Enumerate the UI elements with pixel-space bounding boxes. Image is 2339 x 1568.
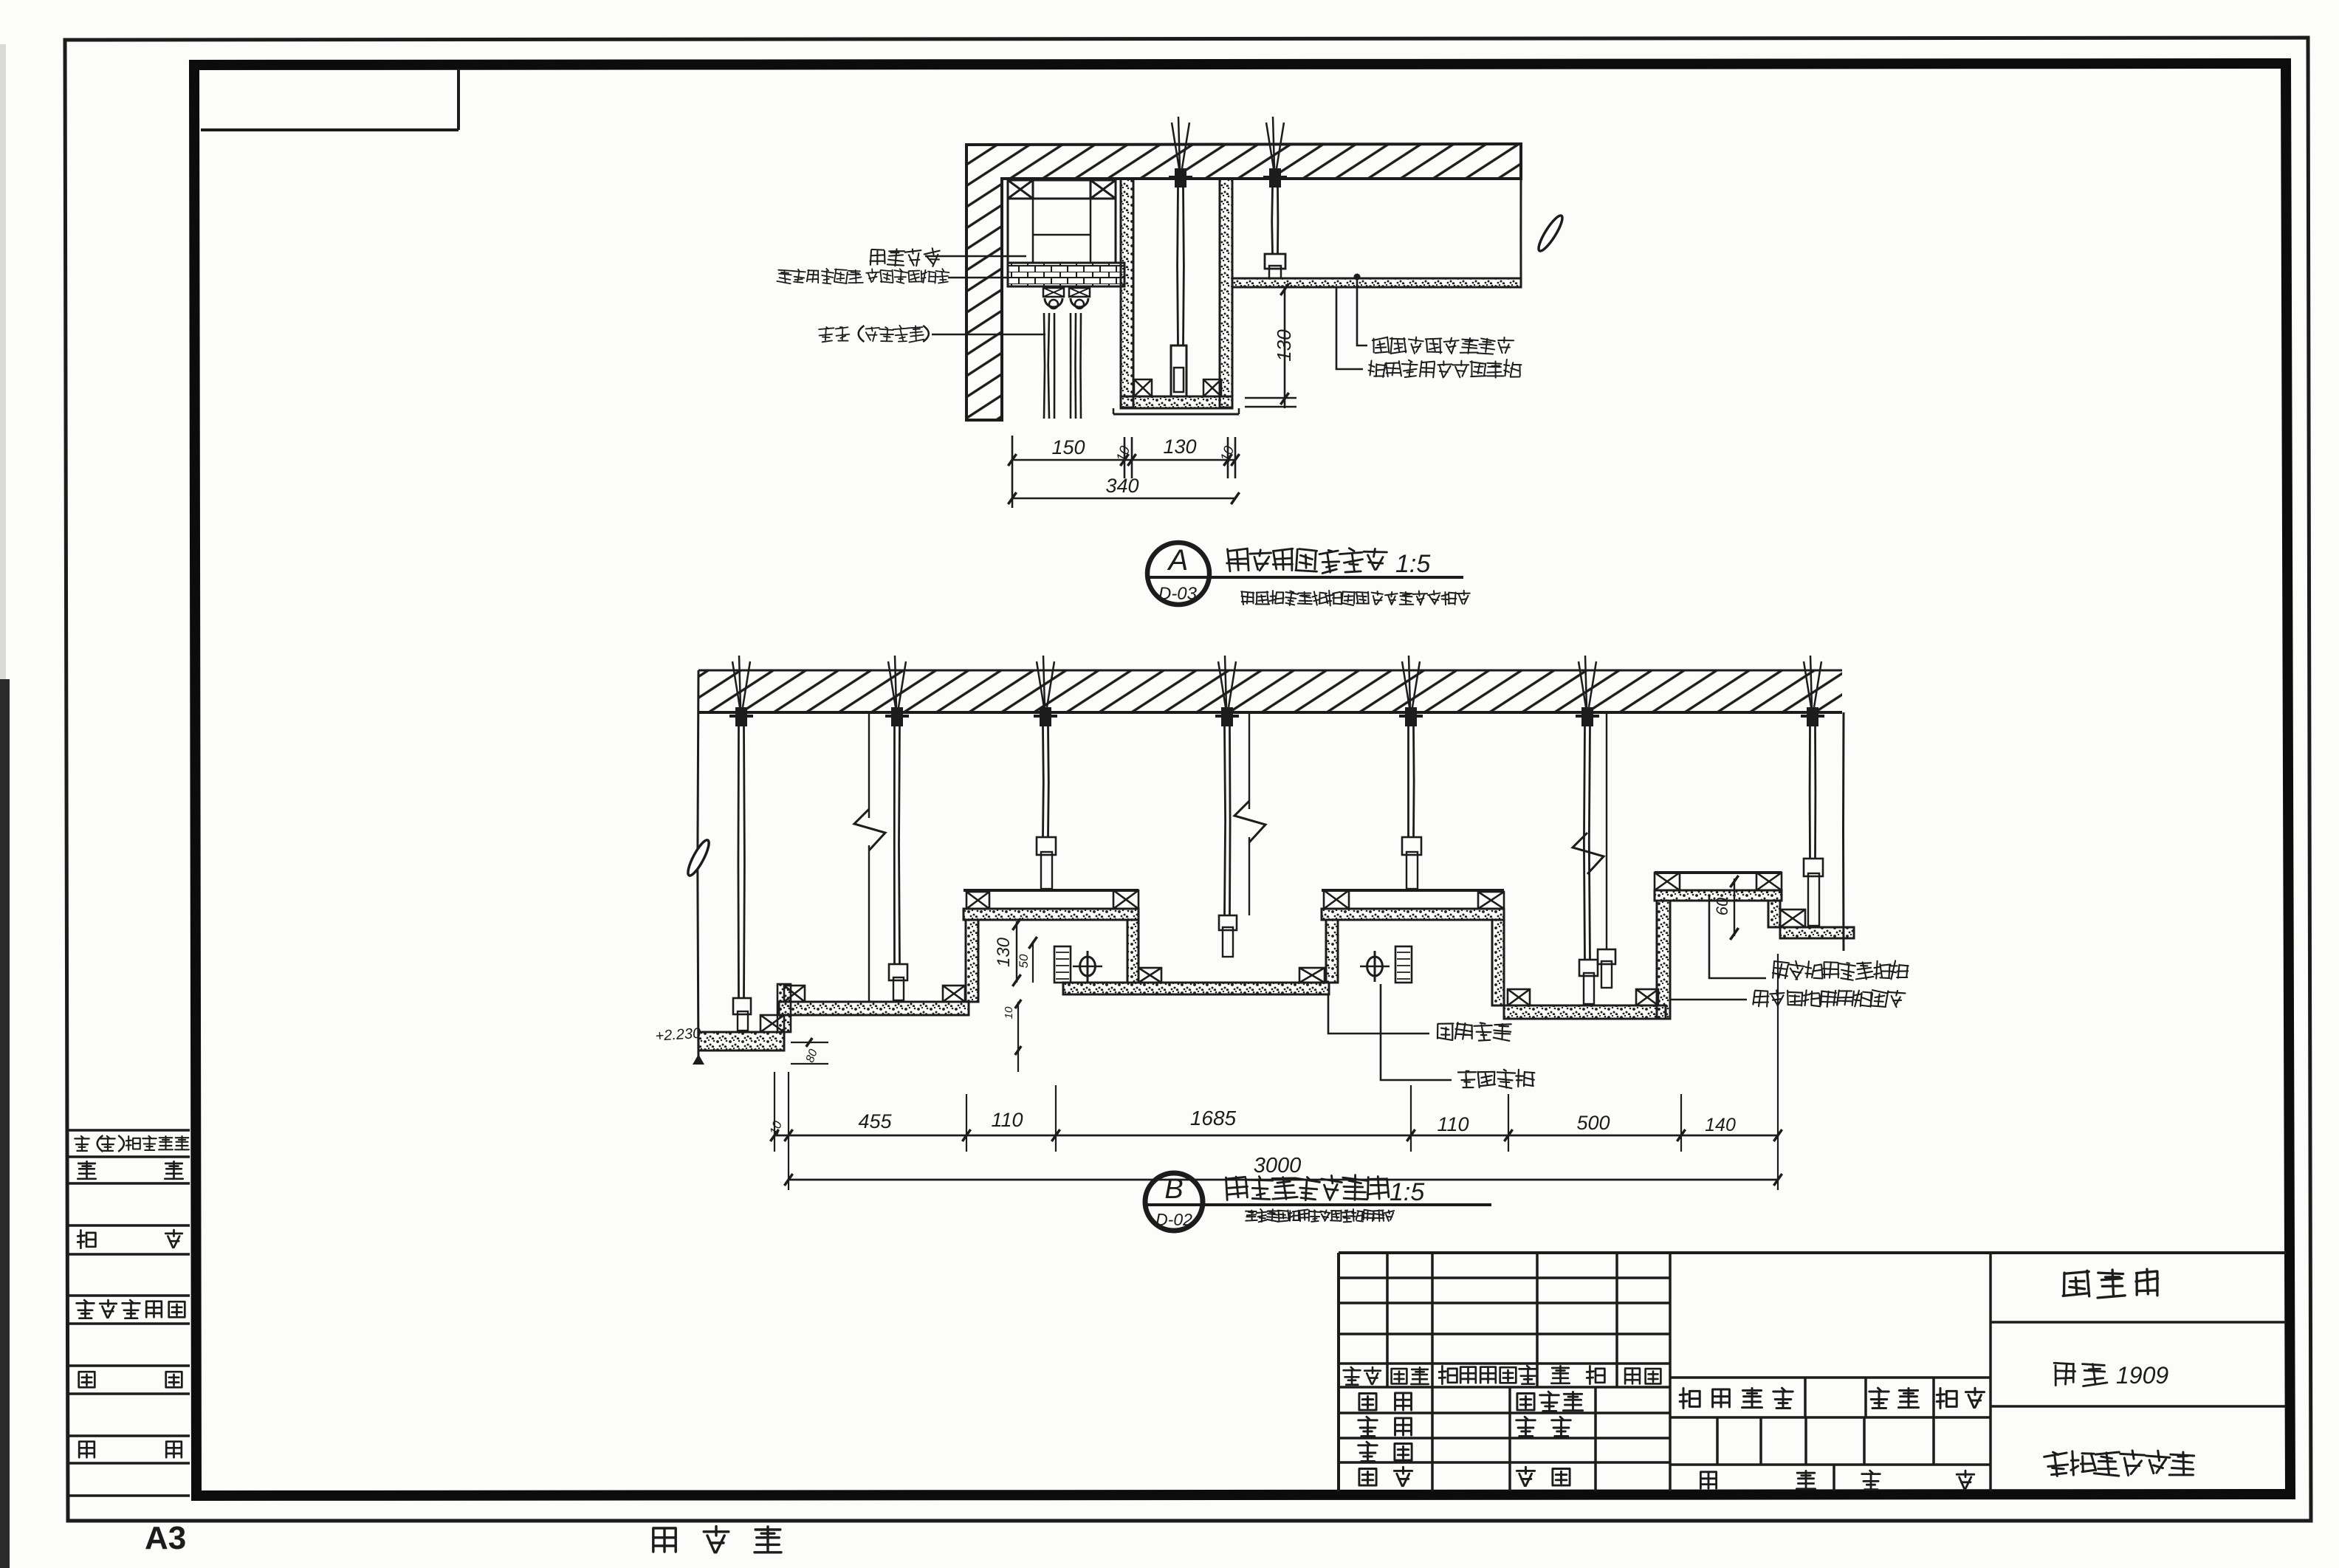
svg-text:D-03: D-03 — [1158, 584, 1198, 604]
svg-text:455: 455 — [858, 1110, 892, 1132]
svg-text:50: 50 — [1017, 954, 1031, 968]
svg-text:130: 130 — [1163, 436, 1196, 458]
svg-text:340: 340 — [1105, 475, 1138, 497]
svg-text:D-02: D-02 — [1155, 1210, 1192, 1229]
svg-text:130: 130 — [1273, 329, 1295, 362]
svg-text:10: 10 — [1003, 1006, 1015, 1019]
svg-text:1:5: 1:5 — [1395, 550, 1430, 578]
svg-text:60: 60 — [1713, 897, 1731, 915]
svg-text:110: 110 — [991, 1109, 1023, 1131]
svg-text:130: 130 — [994, 937, 1014, 967]
svg-text:3000: 3000 — [1254, 1154, 1302, 1177]
svg-text:140: 140 — [1705, 1115, 1736, 1135]
svg-text:A3: A3 — [145, 1520, 186, 1556]
svg-text:1685: 1685 — [1190, 1107, 1237, 1129]
svg-text:+2.230: +2.230 — [655, 1025, 701, 1045]
svg-text:500: 500 — [1576, 1112, 1610, 1134]
svg-text:150: 150 — [1051, 436, 1085, 458]
svg-text:A: A — [1167, 544, 1189, 577]
svg-text:1909: 1909 — [2116, 1362, 2168, 1389]
svg-text:1:5: 1:5 — [1390, 1178, 1424, 1206]
svg-text:110: 110 — [1437, 1113, 1469, 1135]
svg-text:B: B — [1164, 1174, 1183, 1205]
